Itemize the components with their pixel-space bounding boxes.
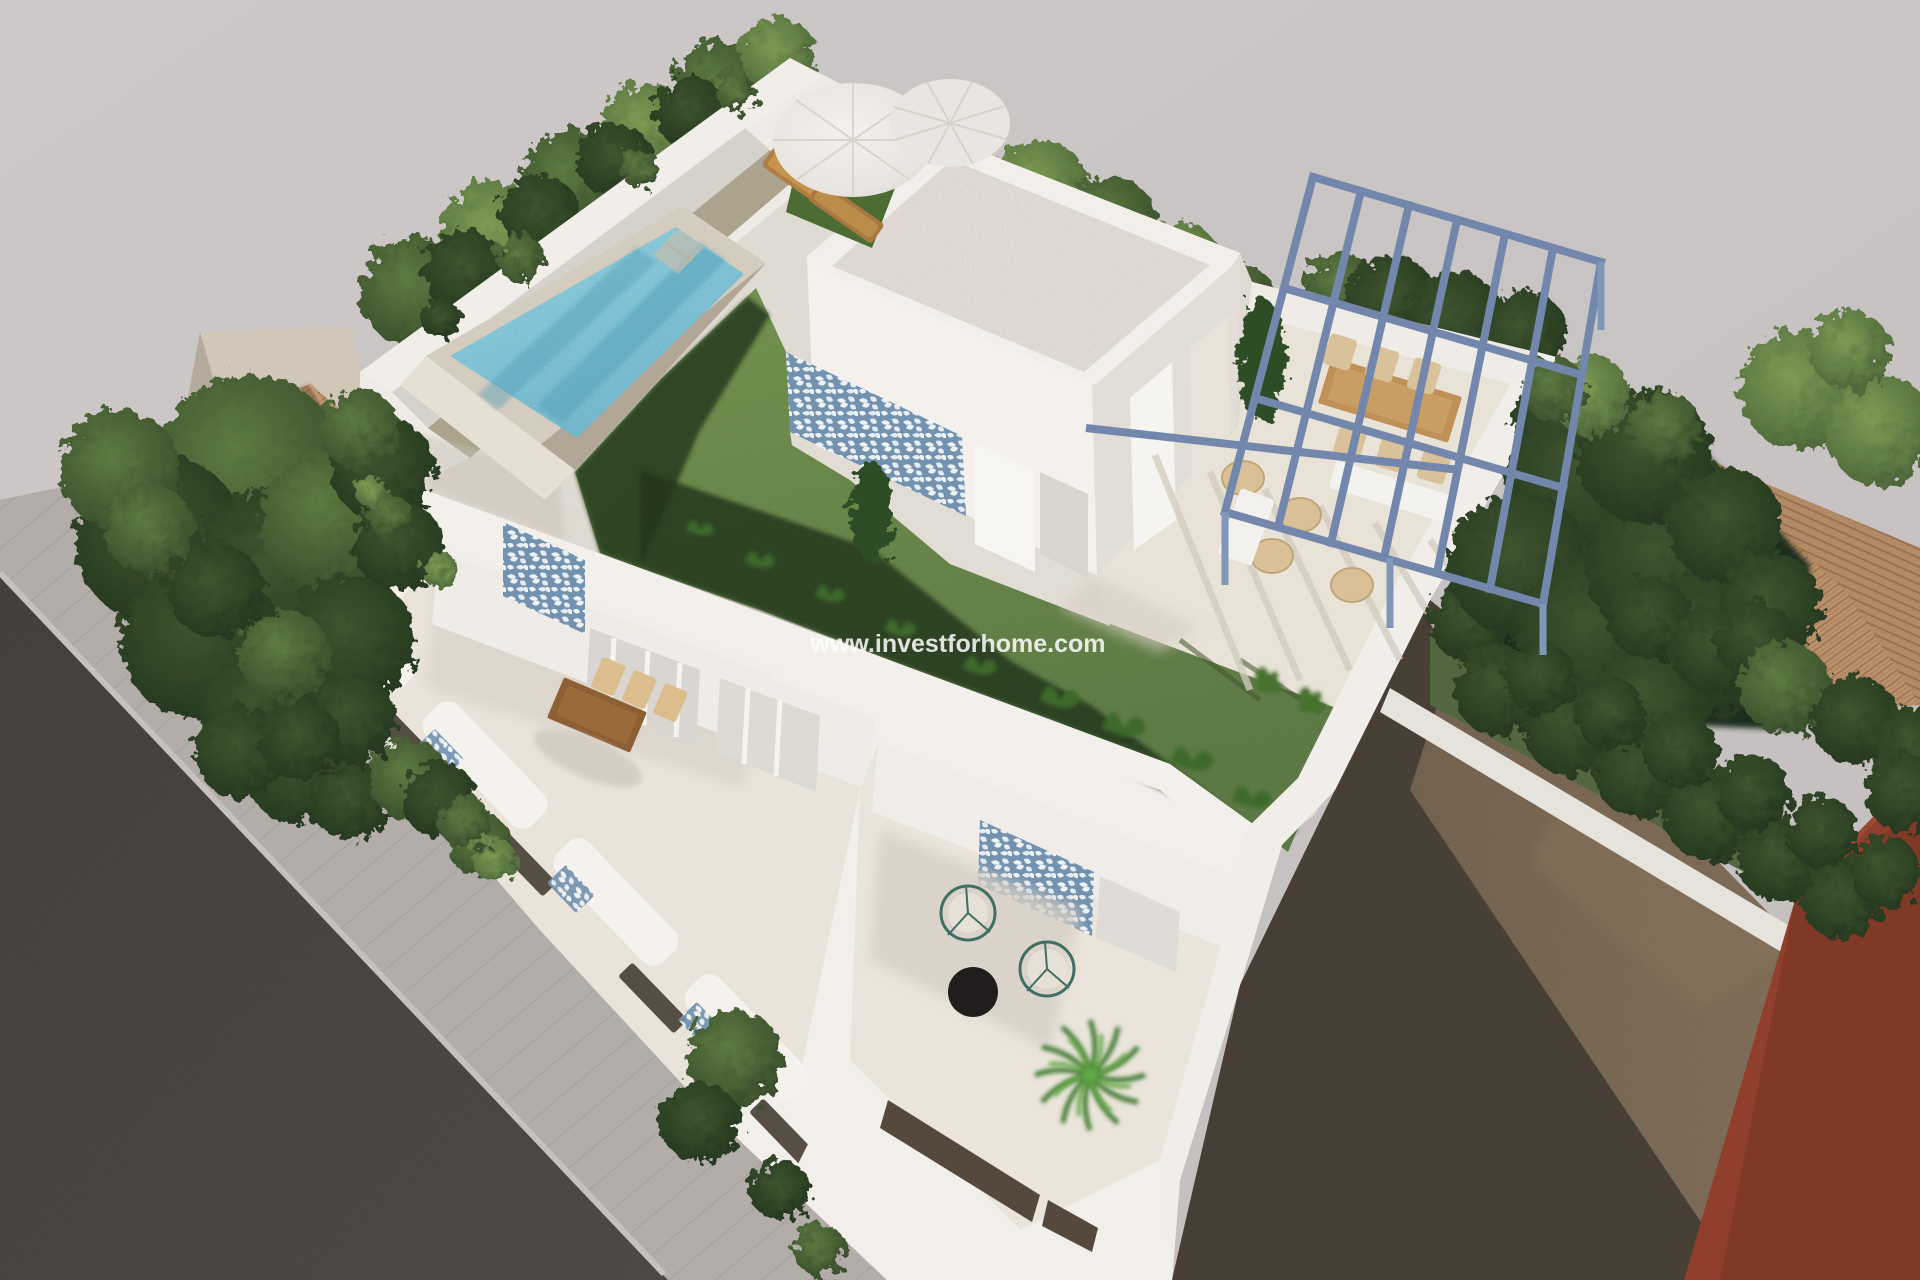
svg-text:www.investforhome.com: www.investforhome.com: [810, 630, 1106, 658]
